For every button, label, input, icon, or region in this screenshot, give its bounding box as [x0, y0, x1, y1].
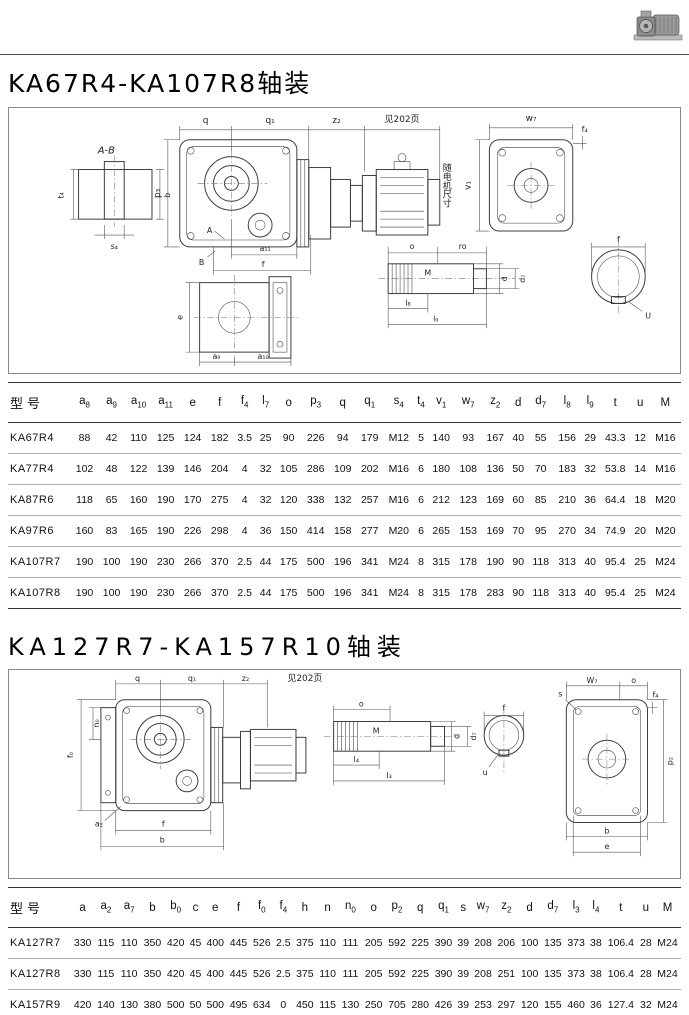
catalog-page: KA67R4-KA107R8轴装 A-B t₄ b s₄ — [0, 0, 689, 1015]
dim-label-o2: o — [631, 676, 636, 685]
dim-label-w7: W₇ — [587, 676, 598, 685]
table-row: KA97R616083165190226298436150414158277M2… — [8, 516, 681, 547]
value-cell: 124 — [179, 423, 206, 454]
value-cell: 380 — [141, 990, 164, 1015]
column-header: h — [293, 888, 316, 928]
model-cell: KA107R7 — [8, 547, 71, 578]
value-cell: 40 — [509, 423, 528, 454]
value-cell: 110 — [118, 959, 141, 990]
value-cell: 94 — [329, 423, 356, 454]
value-cell: 275 — [206, 485, 233, 516]
dim-label-l3: l₃ — [386, 771, 391, 780]
value-cell: 150 — [275, 516, 302, 547]
shaft2-end-view: f u — [483, 704, 524, 777]
value-cell: 170 — [179, 485, 206, 516]
value-cell: 32 — [256, 485, 275, 516]
table-row: KA67R488421101251241823.5259022694179M12… — [8, 423, 681, 454]
dim-label-l9: l₉ — [433, 314, 438, 323]
value-cell: 120 — [275, 485, 302, 516]
value-cell: 123 — [455, 485, 482, 516]
value-cell: 158 — [329, 516, 356, 547]
value-cell: 105 — [275, 454, 302, 485]
value-cell: 25 — [256, 423, 275, 454]
value-cell: 270 — [554, 516, 581, 547]
value-cell: 190 — [152, 485, 179, 516]
value-cell: 313 — [554, 578, 581, 609]
value-cell: 208 — [471, 928, 494, 959]
value-cell: 179 — [356, 423, 383, 454]
column-header: l4 — [588, 888, 604, 928]
value-cell: M20 — [383, 516, 414, 547]
section-ab-label: A-B — [97, 146, 115, 157]
value-cell: 426 — [432, 990, 455, 1015]
column-header: a — [71, 888, 94, 928]
see-page-note: 见202页 — [385, 114, 420, 125]
column-header: c — [187, 888, 203, 928]
value-cell: 169 — [482, 485, 509, 516]
ka67-ka107-dimension-table: 型号a8a9a10a11eff4l7op3qq1s4t4v1w7z2dd7l8l… — [8, 382, 681, 609]
dim-label-n0: n₀ — [92, 719, 101, 727]
column-header: o — [275, 383, 302, 423]
column-header: s4 — [383, 383, 414, 423]
dim-label-b: b — [160, 835, 165, 844]
value-cell: 95.4 — [600, 547, 631, 578]
value-cell: 592 — [385, 959, 408, 990]
column-header: b0 — [164, 888, 187, 928]
shaft-end-view: f U — [592, 235, 652, 320]
value-cell: 190 — [152, 516, 179, 547]
value-cell: 5 — [414, 423, 427, 454]
see-page-note-2: 见202页 — [287, 673, 322, 684]
value-cell: 110 — [316, 928, 338, 959]
value-cell: 122 — [125, 454, 152, 485]
value-cell: 500 — [302, 547, 329, 578]
value-cell: 175 — [275, 547, 302, 578]
value-cell: M24 — [650, 578, 681, 609]
value-cell: 450 — [293, 990, 316, 1015]
value-cell: 135 — [541, 959, 564, 990]
column-header: d7 — [541, 888, 564, 928]
brand-logo-image — [629, 5, 687, 47]
value-cell: 156 — [554, 423, 581, 454]
value-cell: 190 — [71, 578, 98, 609]
value-cell: 110 — [125, 423, 152, 454]
value-cell: 109 — [329, 454, 356, 485]
value-cell: 190 — [482, 547, 509, 578]
value-cell: M24 — [654, 959, 681, 990]
column-header: v1 — [428, 383, 455, 423]
value-cell: 28 — [638, 928, 654, 959]
value-cell: 230 — [152, 578, 179, 609]
value-cell: 286 — [302, 454, 329, 485]
value-cell: 341 — [356, 578, 383, 609]
value-cell: 169 — [482, 516, 509, 547]
output2-end-view: W₇ o s f₄ p₂ b e — [558, 676, 674, 856]
model-cell: KA67R4 — [8, 423, 71, 454]
value-cell: 48 — [98, 454, 125, 485]
value-cell: 65 — [98, 485, 125, 516]
value-cell: 139 — [152, 454, 179, 485]
dim-label-a2: a₂ — [95, 819, 103, 828]
value-cell: 93 — [455, 423, 482, 454]
value-cell: 40 — [581, 578, 600, 609]
gearbox-front-view: e a₉ a₁₀ — [176, 275, 299, 366]
value-cell: 6 — [414, 485, 427, 516]
value-cell: 167 — [482, 423, 509, 454]
dim-label-l8: l₈ — [405, 298, 410, 307]
value-cell: M16 — [383, 485, 414, 516]
dim-label-f0: f₀ — [66, 752, 75, 758]
table-row: KA157R9420140130380500505004956340450115… — [8, 990, 681, 1015]
value-cell: 315 — [428, 547, 455, 578]
header-row: 型号aa2a7bb0ceff0f4hnn0op2qq1sw7z2dd7l3l4t… — [8, 888, 681, 928]
value-cell: 420 — [164, 928, 187, 959]
value-cell: 2.5 — [233, 578, 256, 609]
value-cell: 250 — [362, 990, 385, 1015]
column-header: d7 — [528, 383, 554, 423]
value-cell: 266 — [179, 578, 206, 609]
column-header: e — [179, 383, 206, 423]
value-cell: 40 — [581, 547, 600, 578]
value-cell: 130 — [118, 990, 141, 1015]
dim-label-ro: ro — [459, 242, 467, 251]
value-cell: 445 — [227, 928, 250, 959]
value-cell: 115 — [94, 928, 117, 959]
value-cell: M24 — [383, 578, 414, 609]
column-header: t — [604, 888, 638, 928]
model-cell: KA87R6 — [8, 485, 71, 516]
value-cell: 32 — [581, 454, 600, 485]
value-cell: 196 — [329, 547, 356, 578]
value-cell: 25 — [631, 547, 650, 578]
header-row: 型号a8a9a10a11eff4l7op3qq1s4t4v1w7z2dd7l8l… — [8, 383, 681, 423]
value-cell: 280 — [409, 990, 432, 1015]
dim-label-v1: v₁ — [464, 181, 474, 190]
section-mark-b: B — [199, 258, 204, 267]
dim-label-d: d — [452, 734, 461, 739]
dim-label-u-end: U — [645, 311, 651, 320]
value-cell: 414 — [302, 516, 329, 547]
value-cell: 202 — [356, 454, 383, 485]
column-header: f — [227, 888, 250, 928]
value-cell: 265 — [428, 516, 455, 547]
value-cell: 146 — [179, 454, 206, 485]
column-header: f — [206, 383, 233, 423]
column-header: a2 — [94, 888, 117, 928]
value-cell: 50 — [509, 454, 528, 485]
column-header: u — [638, 888, 654, 928]
dim-label-a11: a₁₁ — [260, 244, 271, 253]
value-cell: 390 — [432, 928, 455, 959]
value-cell: 32 — [256, 454, 275, 485]
value-cell: 190 — [125, 578, 152, 609]
value-cell: 70 — [528, 454, 554, 485]
value-cell: 592 — [385, 928, 408, 959]
column-header: n0 — [339, 888, 362, 928]
value-cell: 373 — [564, 928, 587, 959]
value-cell: 135 — [541, 928, 564, 959]
value-cell: 4 — [233, 485, 256, 516]
ka127-ka157-dimension-table: 型号aa2a7bb0ceff0f4hnn0op2qq1sw7z2dd7l3l4t… — [8, 887, 681, 1015]
value-cell: 225 — [409, 928, 432, 959]
value-cell: 36 — [588, 990, 604, 1015]
dim-label-f4: f₄ — [652, 691, 658, 700]
value-cell: 102 — [71, 454, 98, 485]
value-cell: 118 — [71, 485, 98, 516]
value-cell: 120 — [518, 990, 541, 1015]
value-cell: 115 — [316, 990, 338, 1015]
dim-label-s: s — [558, 690, 562, 699]
value-cell: 36 — [581, 485, 600, 516]
value-cell: 100 — [98, 547, 125, 578]
value-cell: 445 — [227, 959, 250, 990]
value-cell: 90 — [509, 547, 528, 578]
column-header: a10 — [125, 383, 152, 423]
column-header: q1 — [432, 888, 455, 928]
value-cell: 283 — [482, 578, 509, 609]
value-cell: 500 — [164, 990, 187, 1015]
column-header: l9 — [581, 383, 600, 423]
value-cell: 43.3 — [600, 423, 631, 454]
value-cell: 206 — [495, 928, 518, 959]
figure1-box: A-B t₄ b s₄ — [8, 107, 681, 374]
value-cell: M24 — [650, 547, 681, 578]
value-cell: 297 — [495, 990, 518, 1015]
model-cell: KA127R8 — [8, 959, 71, 990]
value-cell: 341 — [356, 547, 383, 578]
value-cell: 375 — [293, 959, 316, 990]
figure2-box: q q₁ z₂ 见202页 f — [8, 669, 681, 879]
value-cell: 110 — [316, 959, 338, 990]
column-header: b — [141, 888, 164, 928]
value-cell: 44 — [256, 547, 275, 578]
value-cell: 108 — [455, 454, 482, 485]
value-cell: 45 — [187, 959, 203, 990]
dim-label-d7: d₇ — [518, 275, 527, 283]
column-header: l7 — [256, 383, 275, 423]
column-header: a8 — [71, 383, 98, 423]
value-cell: 190 — [71, 547, 98, 578]
value-cell: 2.5 — [273, 928, 293, 959]
value-cell: 125 — [152, 423, 179, 454]
value-cell: 20 — [631, 516, 650, 547]
dim-label-q: q — [203, 116, 209, 126]
value-cell: 32 — [638, 990, 654, 1015]
value-cell: 74.9 — [600, 516, 631, 547]
value-cell: 705 — [385, 990, 408, 1015]
column-header: o — [362, 888, 385, 928]
shaft2-side-view: o M d d₇ l₄ l₃ — [324, 700, 478, 785]
dim-label-m: M — [424, 269, 431, 278]
value-cell: 130 — [339, 990, 362, 1015]
value-cell: 4 — [233, 454, 256, 485]
value-cell: 205 — [362, 928, 385, 959]
value-cell: 350 — [141, 928, 164, 959]
value-cell: 111 — [339, 928, 362, 959]
value-cell: 257 — [356, 485, 383, 516]
dim-label-z2: z₂ — [242, 674, 249, 683]
column-header: s — [455, 888, 471, 928]
value-cell: 6 — [414, 516, 427, 547]
value-cell: 140 — [94, 990, 117, 1015]
dim-label-d7: d₇ — [469, 732, 478, 740]
value-cell: 160 — [125, 485, 152, 516]
column-header: p3 — [302, 383, 329, 423]
value-cell: 111 — [339, 959, 362, 990]
value-cell: 3.5 — [233, 423, 256, 454]
dim-label-f-end: f — [617, 235, 620, 244]
section-mark-a: A — [207, 226, 213, 235]
value-cell: 29 — [581, 423, 600, 454]
column-header: l8 — [554, 383, 581, 423]
value-cell: 210 — [554, 485, 581, 516]
value-cell: 127.4 — [604, 990, 638, 1015]
value-cell: 39 — [455, 928, 471, 959]
column-header: p2 — [385, 888, 408, 928]
table1-body: KA67R488421101251241823.5259022694179M12… — [8, 423, 681, 609]
value-cell: 6 — [414, 454, 427, 485]
value-cell: 500 — [302, 578, 329, 609]
value-cell: 90 — [275, 423, 302, 454]
value-cell: 370 — [206, 578, 233, 609]
column-header: d — [518, 888, 541, 928]
dim-label-e: e — [604, 842, 609, 851]
table-row: KA77R410248122139146204432105286109202M1… — [8, 454, 681, 485]
column-header: l3 — [564, 888, 587, 928]
value-cell: 225 — [409, 959, 432, 990]
shaft-side-view: o ro M d d₇ l₈ l₉ — [378, 242, 527, 328]
value-cell: 0 — [273, 990, 293, 1015]
table2-head: 型号aa2a7bb0ceff0f4hnn0op2qq1sw7z2dd7l3l4t… — [8, 888, 681, 928]
value-cell: 50 — [187, 990, 203, 1015]
value-cell: 460 — [564, 990, 587, 1015]
value-cell: 14 — [631, 454, 650, 485]
page-title-1: KA67R4-KA107R8轴装 — [8, 64, 689, 100]
value-cell: 634 — [250, 990, 273, 1015]
value-cell: 495 — [227, 990, 250, 1015]
value-cell: 100 — [518, 959, 541, 990]
value-cell: 251 — [495, 959, 518, 990]
column-header: z2 — [495, 888, 518, 928]
gearbox-side-view: q q₁ z₂ 见202页 p₃ A B a₁₁ f 随电机尺寸 — [153, 114, 451, 275]
value-cell: 90 — [509, 578, 528, 609]
value-cell: 182 — [206, 423, 233, 454]
dim-label-q1: q₁ — [265, 116, 275, 126]
value-cell: 500 — [204, 990, 227, 1015]
value-cell: 298 — [206, 516, 233, 547]
value-cell: 4 — [233, 516, 256, 547]
column-header: M — [650, 383, 681, 423]
column-header: t — [600, 383, 631, 423]
column-header: z2 — [482, 383, 509, 423]
value-cell: 53.8 — [600, 454, 631, 485]
value-cell: 132 — [329, 485, 356, 516]
value-cell: 212 — [428, 485, 455, 516]
value-cell: 34 — [581, 516, 600, 547]
value-cell: 83 — [98, 516, 125, 547]
value-cell: 118 — [528, 578, 554, 609]
dim-label-u: u — [483, 768, 488, 777]
value-cell: 18 — [631, 485, 650, 516]
figure2-drawing: q q₁ z₂ 见202页 f — [9, 670, 680, 873]
value-cell: 208 — [471, 959, 494, 990]
value-cell: M20 — [650, 485, 681, 516]
value-cell: 39 — [455, 959, 471, 990]
dim-label-p2: p₂ — [665, 757, 674, 765]
column-header: u — [631, 383, 650, 423]
dim-label-l4: l₄ — [354, 755, 359, 764]
value-cell: 45 — [187, 928, 203, 959]
dim-label-z2: z₂ — [332, 116, 341, 126]
dim-label-b: b — [163, 193, 172, 198]
table-row: KA127R8330115110350420454004455262.53751… — [8, 959, 681, 990]
column-header: q — [329, 383, 356, 423]
value-cell: M20 — [650, 516, 681, 547]
value-cell: 88 — [71, 423, 98, 454]
value-cell: 266 — [179, 547, 206, 578]
model-cell: KA127R7 — [8, 928, 71, 959]
value-cell: 95 — [528, 516, 554, 547]
value-cell: 153 — [455, 516, 482, 547]
column-header: w7 — [471, 888, 494, 928]
value-cell: 25 — [631, 578, 650, 609]
model-column-header: 型号 — [8, 383, 71, 423]
value-cell: 420 — [164, 959, 187, 990]
value-cell: 373 — [564, 959, 587, 990]
dim-label-f4: f₄ — [582, 125, 588, 134]
page-title-2: KA127R7-KA157R10轴装 — [8, 627, 689, 662]
value-cell: 230 — [152, 547, 179, 578]
dim-label-p3: p₃ — [153, 188, 163, 198]
value-cell: M16 — [650, 454, 681, 485]
table-row: KA107R71901001902302663702.5441755001963… — [8, 547, 681, 578]
model-cell: KA107R8 — [8, 578, 71, 609]
table-row: KA87R611865160190170275432120338132257M1… — [8, 485, 681, 516]
value-cell: 190 — [125, 547, 152, 578]
value-cell: M12 — [383, 423, 414, 454]
dim-label-m: M — [373, 726, 380, 735]
dim-label-q1: q₁ — [188, 674, 196, 683]
value-cell: 526 — [250, 959, 273, 990]
value-cell: 226 — [302, 423, 329, 454]
dim-label-e: e — [176, 315, 185, 320]
value-cell: 2.5 — [273, 959, 293, 990]
dim-label-w7: w₇ — [526, 114, 537, 124]
dim-label-o: o — [410, 242, 415, 251]
value-cell: 390 — [432, 959, 455, 990]
table1-head: 型号a8a9a10a11eff4l7op3qq1s4t4v1w7z2dd7l8l… — [8, 383, 681, 423]
value-cell: 100 — [98, 578, 125, 609]
value-cell: 140 — [428, 423, 455, 454]
value-cell: 315 — [428, 578, 455, 609]
value-cell: 160 — [71, 516, 98, 547]
value-cell: 253 — [471, 990, 494, 1015]
value-cell: 526 — [250, 928, 273, 959]
value-cell: 420 — [71, 990, 94, 1015]
dim-label-o: o — [359, 700, 364, 709]
dim-label-a10: a₁₀ — [258, 352, 269, 361]
column-header: f4 — [233, 383, 256, 423]
value-cell: M24 — [654, 928, 681, 959]
value-cell: 400 — [204, 959, 227, 990]
value-cell: M16 — [383, 454, 414, 485]
dim-label-f: f — [262, 260, 265, 269]
column-header: a9 — [98, 383, 125, 423]
value-cell: 55 — [528, 423, 554, 454]
value-cell: 36 — [256, 516, 275, 547]
value-cell: 2.5 — [233, 547, 256, 578]
column-header: d — [509, 383, 528, 423]
